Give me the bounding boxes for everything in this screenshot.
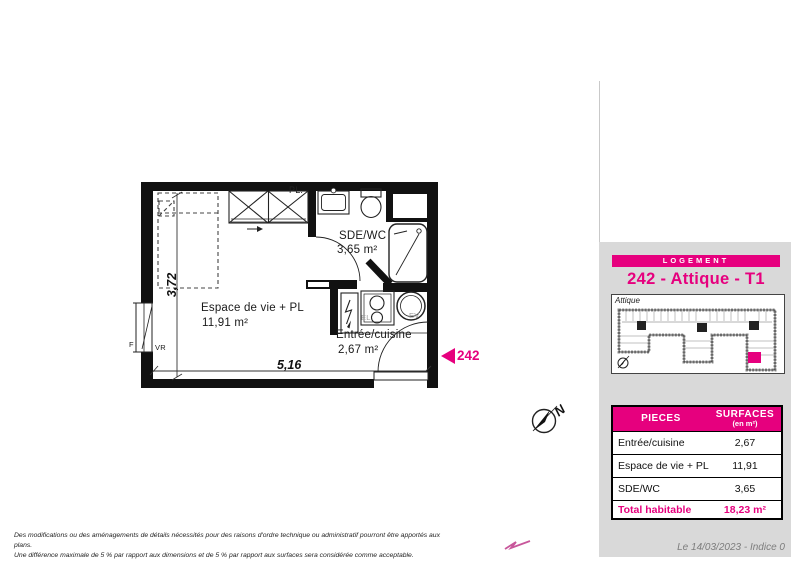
keyplan-compass-icon	[618, 356, 629, 368]
room-entry-name: Entrée/cuisine	[336, 329, 412, 341]
surfaces-table: PIECES SURFACES (en m²) Entrée/cuisine 2…	[611, 405, 783, 520]
keyplan-core-2	[697, 323, 707, 332]
entrance-door-leaf	[374, 372, 428, 380]
closet-arrow-icon	[257, 226, 263, 232]
unit-arrow-icon	[441, 348, 455, 364]
col-header-surfaces: SURFACES (en m²)	[709, 406, 782, 432]
date-indice: Le 14/03/2023 - Indice 0	[599, 542, 785, 553]
room-living-name: Espace de vie + PL	[201, 302, 304, 314]
room-living-area: 11,91 m²	[202, 317, 248, 329]
panel-header-label: LOGEMENT	[663, 256, 730, 265]
keyplan-unit-highlight	[748, 352, 761, 363]
table-row: Espace de vie + PL 11,91	[612, 455, 782, 478]
disclaimer: Des modifications ou des aménagements de…	[14, 531, 444, 561]
room-sdewc-name: SDE/WC	[339, 230, 386, 242]
keyplan-box: Attique	[611, 294, 785, 374]
panel-top-rule	[599, 81, 600, 242]
shaft-inner	[393, 194, 427, 218]
keyplan-core-3	[749, 321, 759, 330]
sink-label: EV	[409, 311, 419, 320]
pocket-door	[307, 281, 330, 288]
unit-number-label: 242	[457, 348, 480, 363]
table-row: Entrée/cuisine 2,67	[612, 432, 782, 455]
plan-sheet: PL. Espace de vie + PL 11,91 m² SDE/WC 3…	[0, 0, 799, 565]
elec-label: EL	[361, 313, 371, 322]
closet-icon	[229, 191, 308, 229]
shutter-label: VR	[155, 343, 166, 352]
keyplan-core-1	[637, 321, 646, 330]
panel-title: 242 - Attique - T1	[612, 270, 780, 289]
window-icon	[133, 303, 153, 352]
table-header-row: PIECES SURFACES (en m²)	[612, 406, 782, 432]
room-entry-area: 2,67 m²	[338, 344, 378, 356]
panel-header-bar: LOGEMENT	[612, 255, 780, 267]
room-sdewc-area: 3,65 m²	[337, 244, 377, 256]
keyplan-drawing	[612, 295, 784, 373]
info-panel: LOGEMENT 242 - Attique - T1 Attique	[599, 242, 791, 557]
dimension-height-label: 3,72	[165, 273, 179, 297]
disclaimer-line-1: Des modifications ou des aménagements de…	[14, 531, 444, 551]
keyplan-floor-label: Attique	[615, 296, 640, 305]
table-row: SDE/WC 3,65	[612, 478, 782, 501]
logo-squiggle-icon	[504, 540, 534, 552]
disclaimer-line-2: Une différence maximale de 5 % par rappo…	[14, 551, 444, 561]
closet-label: PL.	[289, 185, 303, 195]
diagonal-wall	[368, 261, 390, 284]
window-label: F	[129, 340, 134, 349]
dimension-width-label: 5,16	[277, 358, 301, 372]
col-header-pieces: PIECES	[612, 406, 709, 432]
table-total-row: Total habitable 18,23 m²	[612, 501, 782, 520]
